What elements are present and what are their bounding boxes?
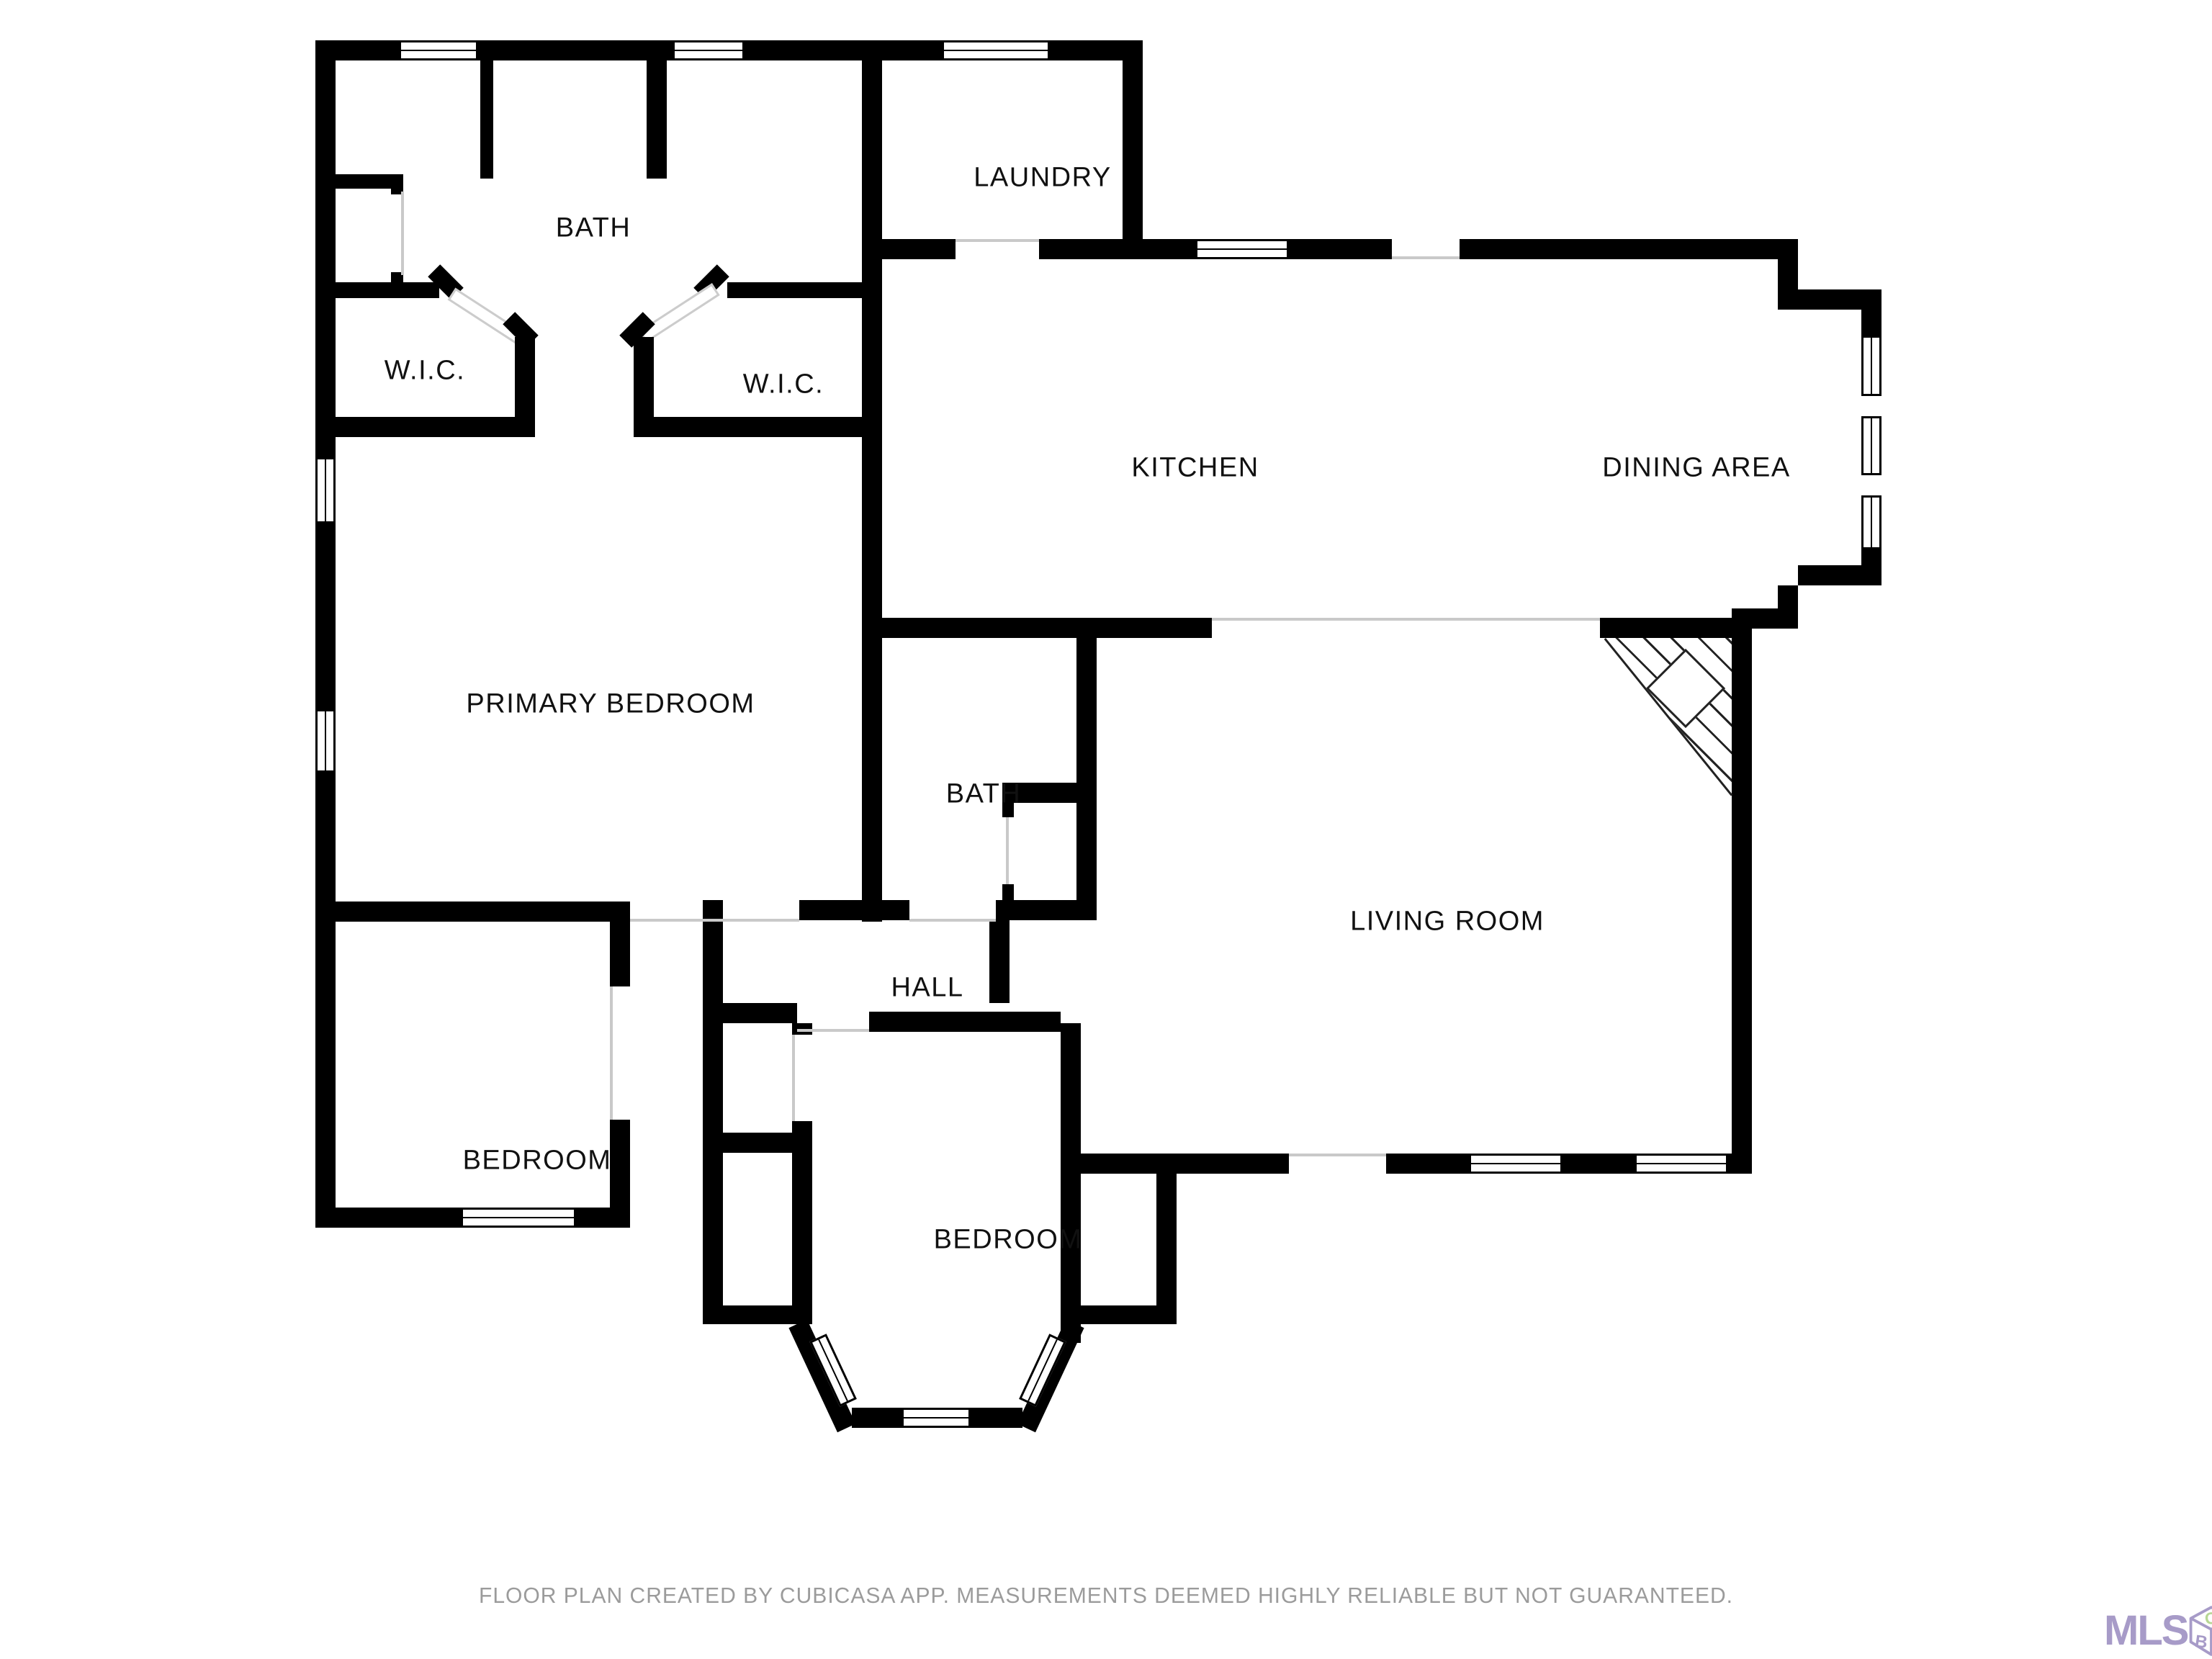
wall-hall-right [989, 920, 1010, 1003]
wall-bay-bottom [1798, 565, 1881, 585]
wall-bay-top [1798, 289, 1881, 310]
door-symbol-wicr [639, 283, 720, 343]
room-label-kitchen: KITCHEN [1131, 453, 1259, 484]
window-symbol [673, 40, 745, 60]
opening-living-bottom-line [1289, 1154, 1386, 1156]
wall-primary-bottom [315, 902, 630, 922]
floor-plan: BATH LAUNDRY W.I.C. W.I.C. KITCHEN DININ… [0, 0, 2212, 1659]
room-label-bedroom-left: BEDROOM [463, 1146, 612, 1177]
window-symbol [1861, 416, 1881, 475]
window-symbol [902, 1408, 971, 1428]
door-opening-laundry-line [956, 239, 1039, 242]
window-symbol [1195, 239, 1289, 259]
opening-kitchen-top-line [1392, 256, 1460, 259]
room-label-wic-left: W.I.C. [385, 356, 465, 387]
floor-plan-page: { "plan": { "rooms": [ {"name": "bath-pr… [0, 0, 2212, 1659]
window-symbol [1469, 1154, 1563, 1174]
door-opening-bath2-closet-line [1006, 817, 1009, 884]
wall-bay-stub-top [1861, 310, 1881, 337]
room-label-bath-hall: BATH [946, 779, 1022, 810]
wall-bath2-stub-b [1002, 884, 1014, 902]
wall-wicr-bottom [634, 417, 882, 437]
wall-bath1-stub-a [480, 60, 493, 179]
door-opening-bath2-line [909, 919, 996, 922]
window-symbol [1861, 336, 1881, 396]
door-opening-laundry [956, 239, 1039, 259]
window-symbol [1861, 495, 1881, 549]
window-symbol [942, 40, 1050, 60]
window-symbol [399, 40, 478, 60]
window-symbol [315, 457, 336, 523]
wall-closet-left [703, 900, 723, 1305]
wall-step-left [703, 1305, 812, 1324]
opening-kitchen-living-line [1212, 618, 1600, 621]
wall-drop [1156, 1174, 1177, 1323]
room-label-bedroom-bottom: BEDROOM [934, 1225, 1083, 1256]
wall-hall-top-a [799, 900, 909, 920]
wall-bath1-stub-b [647, 60, 667, 179]
svg-text:B: B [2194, 1632, 2209, 1653]
room-label-hall: HALL [891, 973, 963, 1004]
wall-closet-top [723, 1003, 797, 1023]
wall-left [315, 40, 336, 1228]
wall-bath2-right [1076, 638, 1097, 920]
room-label-living-room: LIVING ROOM [1350, 907, 1545, 938]
window-symbol [1635, 1154, 1728, 1174]
wall-living-right [1732, 618, 1752, 1174]
mlsbox-logo: MLS O B X [2104, 1606, 2212, 1656]
wall-wicl-bottom [315, 417, 535, 437]
wall-step-right [1075, 1305, 1177, 1324]
window-symbol [461, 1208, 576, 1228]
opening-kitchen-living [1212, 618, 1600, 638]
door-opening-primary-hall-line [630, 919, 799, 922]
door-opening-bedroom1 [610, 986, 630, 1120]
wall-bedroom2-top [869, 1012, 1061, 1032]
footer-caption: FLOOR PLAN CREATED BY CUBICASA APP. MEAS… [33, 1583, 2179, 1609]
wall-closet-bottom [723, 1133, 797, 1153]
wall-laundry-right [1123, 40, 1143, 259]
wall-notch-top [315, 174, 403, 189]
room-label-dining-area: DINING AREA [1602, 453, 1790, 484]
room-label-laundry: LAUNDRY [974, 163, 1111, 194]
door-opening-closet [792, 1035, 812, 1121]
room-label-bath-primary: BATH [556, 213, 631, 244]
mlsbox-logo-text: MLS [2104, 1608, 2188, 1654]
door-slider-line [401, 192, 404, 275]
window-symbol [315, 709, 336, 773]
door-opening-closet-line [792, 1035, 795, 1121]
wall-wicl-top [315, 282, 439, 298]
wall-bedroom2-right [1061, 1023, 1081, 1343]
door-opening-bedroom1-line [610, 986, 613, 1120]
room-label-wic-right: W.I.C. [743, 369, 824, 400]
opening-living-bottom [1289, 1154, 1386, 1174]
wall-dining-step [1778, 239, 1798, 310]
wall-wicr-top [727, 282, 862, 298]
room-label-primary-bedroom: PRIMARY BEDROOM [466, 689, 755, 720]
wall-spine [862, 40, 882, 922]
door-opening-bedroom2-line [797, 1029, 869, 1032]
mlsbox-cube-icon: O B X [2188, 1606, 2212, 1656]
